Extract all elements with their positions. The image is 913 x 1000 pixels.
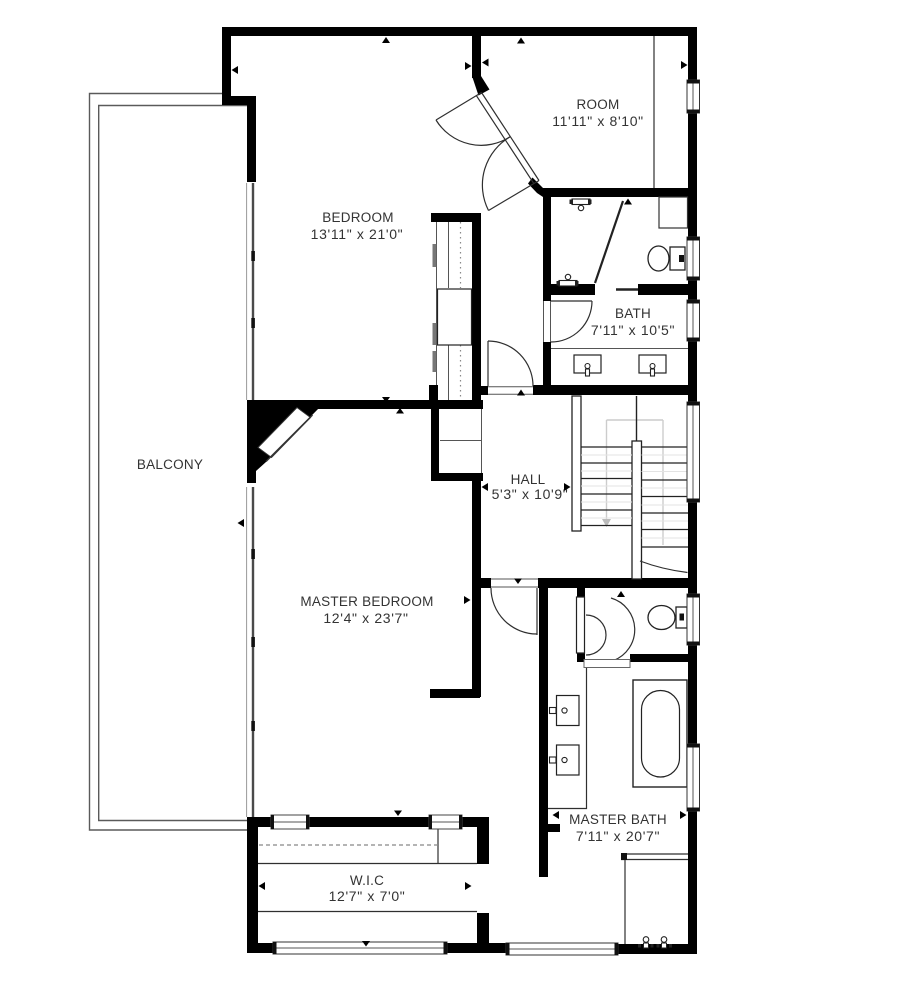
svg-text:12'7" x 7'0": 12'7" x 7'0" <box>329 888 406 904</box>
svg-text:MASTER BEDROOM: MASTER BEDROOM <box>300 594 433 609</box>
svg-text:W.I.C: W.I.C <box>350 873 384 888</box>
svg-text:7'11" x 10'5": 7'11" x 10'5" <box>591 322 675 338</box>
svg-text:ROOM: ROOM <box>577 97 620 112</box>
svg-text:BALCONY: BALCONY <box>137 457 203 472</box>
svg-text:11'11" x 8'10": 11'11" x 8'10" <box>552 113 644 129</box>
svg-text:12'4" x 23'7": 12'4" x 23'7" <box>323 610 408 626</box>
svg-text:HALL: HALL <box>511 472 546 487</box>
svg-text:BEDROOM: BEDROOM <box>322 210 394 225</box>
svg-text:MASTER BATH: MASTER BATH <box>569 812 667 827</box>
svg-text:BATH: BATH <box>615 306 651 321</box>
svg-text:13'11" x 21'0": 13'11" x 21'0" <box>311 226 404 242</box>
svg-text:7'11" x 20'7": 7'11" x 20'7" <box>576 828 660 844</box>
svg-text:5'3" x 10'9": 5'3" x 10'9" <box>492 486 569 502</box>
